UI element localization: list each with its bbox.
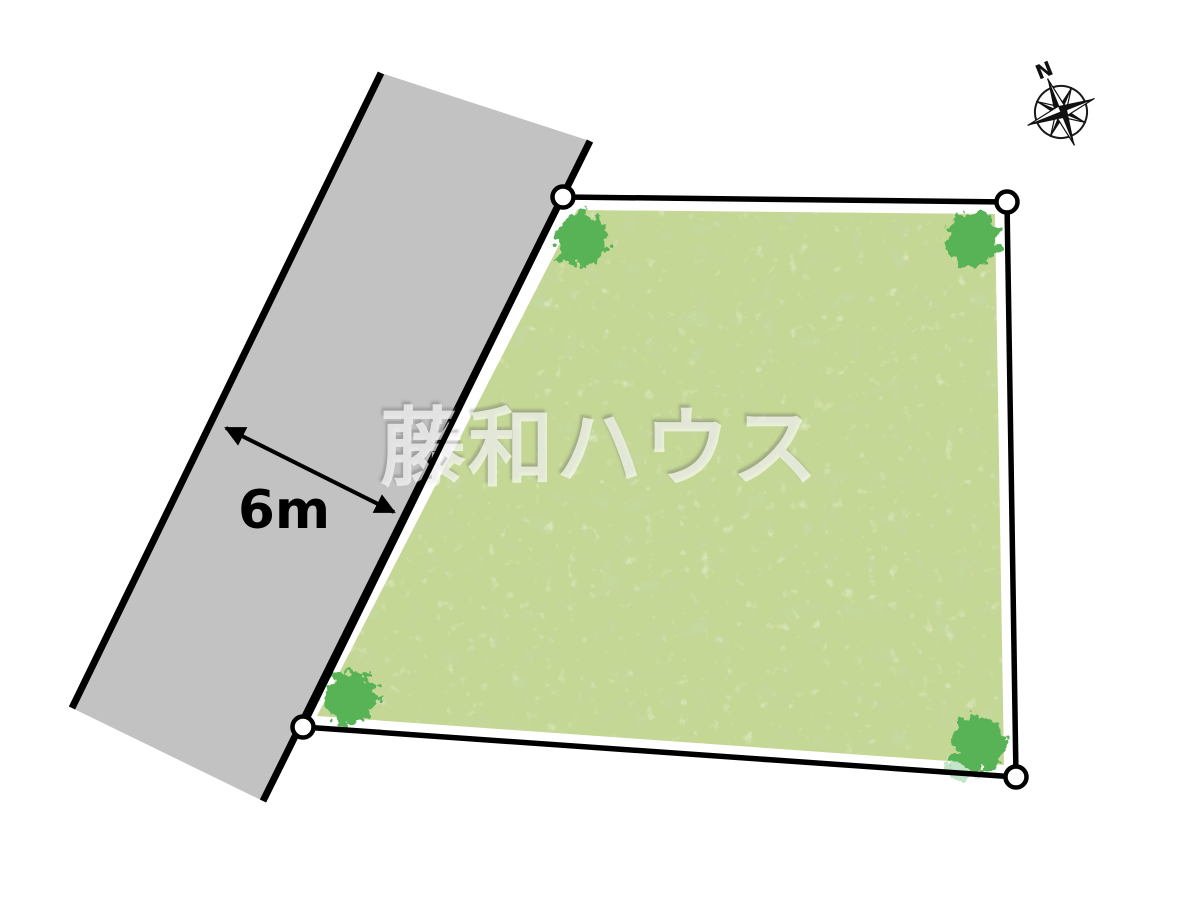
corner-marker-bottom-left <box>293 717 314 738</box>
compass-rose-icon: N <box>1006 46 1108 159</box>
site-plan-drawing: 藤和ハウス 6m <box>0 0 1200 900</box>
compass-north-label: N <box>1032 56 1057 85</box>
tree-icon-bottom-right <box>950 716 1006 772</box>
tree-icon-top-right <box>946 213 1000 267</box>
corner-marker-top-right <box>997 192 1018 213</box>
corner-marker-bottom-right <box>1006 767 1027 788</box>
tree-icon-bottom-left <box>323 671 377 725</box>
watermark-logo-text: 藤和ハウス <box>380 399 820 499</box>
compass-main-points <box>1014 65 1108 159</box>
corner-marker-top-left <box>553 187 574 208</box>
road-width-label: 6m <box>238 480 330 541</box>
site-plan-canvas: 藤和ハウス 6m <box>0 0 1200 900</box>
tree-icon-top-left <box>554 212 608 266</box>
